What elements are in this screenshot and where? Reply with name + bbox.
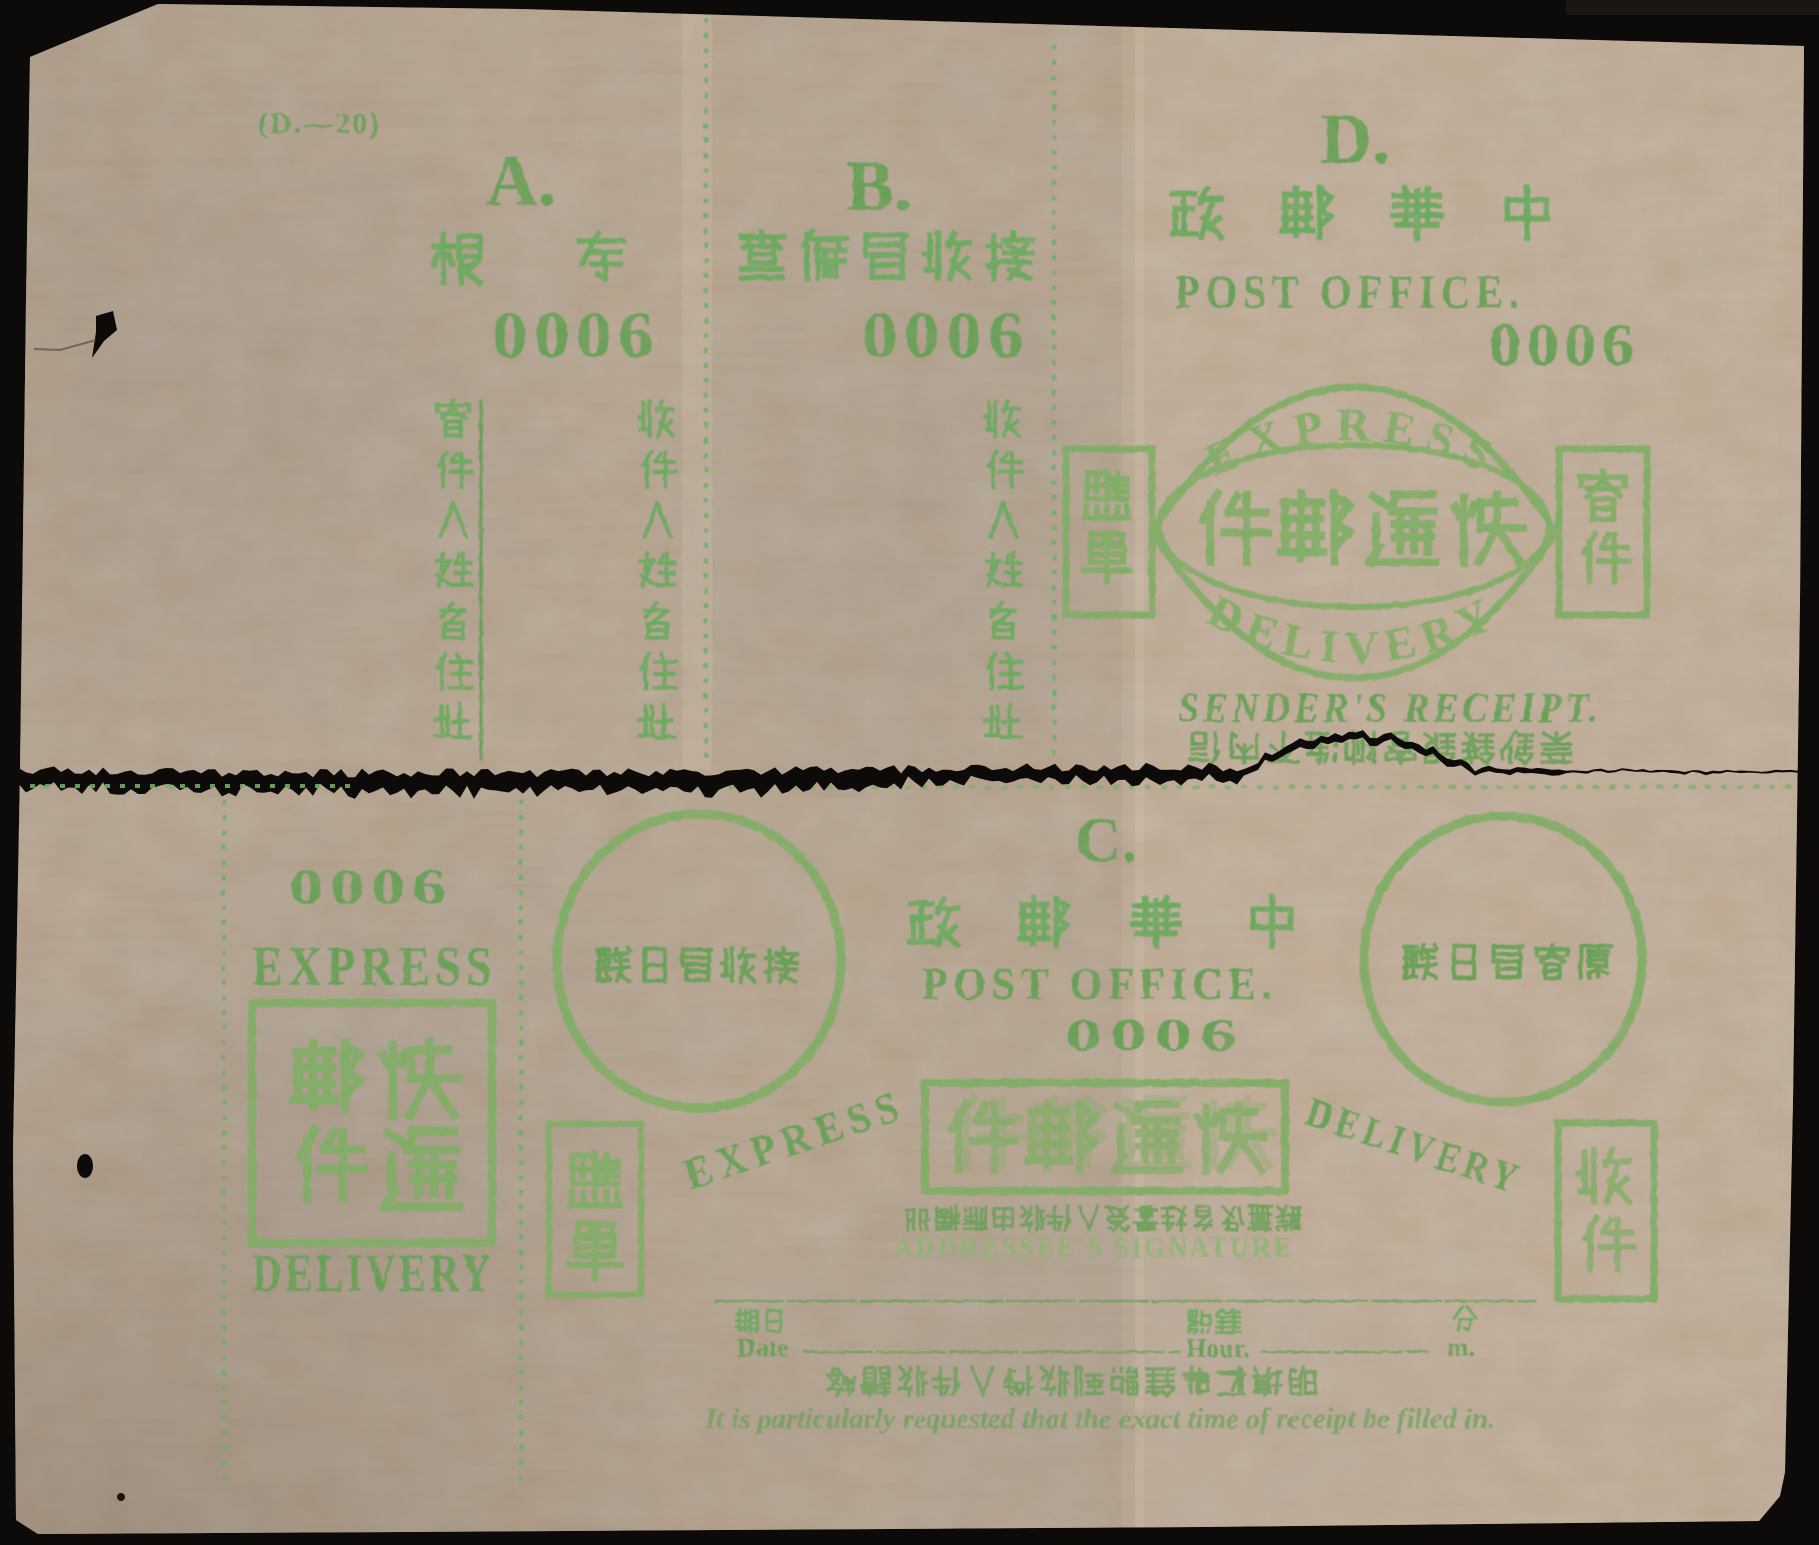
svg-text:0006: 0006 — [1489, 312, 1639, 378]
svg-text:DELIVERY: DELIVERY — [252, 1243, 494, 1303]
svg-text:(D.—20): (D.—20) — [258, 107, 381, 140]
svg-text:Hour.: Hour. — [1186, 1334, 1249, 1363]
svg-text:Date: Date — [737, 1333, 789, 1362]
svg-text:ADDRESSEE'S SIGNATURE: ADDRESSEE'S SIGNATURE — [894, 1231, 1294, 1264]
svg-text:m.: m. — [1447, 1333, 1475, 1362]
svg-text:A.: A. — [486, 141, 556, 221]
svg-text:POST OFFICE.: POST OFFICE. — [1175, 266, 1525, 319]
svg-text:SENDER'S RECEIPT.: SENDER'S RECEIPT. — [1178, 686, 1602, 732]
svg-text:B.: B. — [846, 146, 912, 226]
svg-text:0006: 0006 — [862, 299, 1030, 372]
svg-text:0006: 0006 — [1065, 1009, 1245, 1060]
svg-text:It is particularly requested t: It is particularly requested that the ex… — [704, 1404, 1495, 1435]
svg-text:POST OFFICE.: POST OFFICE. — [922, 958, 1278, 1009]
svg-text:EXPRESS: EXPRESS — [252, 936, 497, 998]
svg-text:C.: C. — [1075, 804, 1137, 875]
svg-text:0006: 0006 — [492, 299, 660, 372]
svg-text:D.: D. — [1320, 99, 1390, 179]
svg-text:0006: 0006 — [289, 858, 453, 914]
